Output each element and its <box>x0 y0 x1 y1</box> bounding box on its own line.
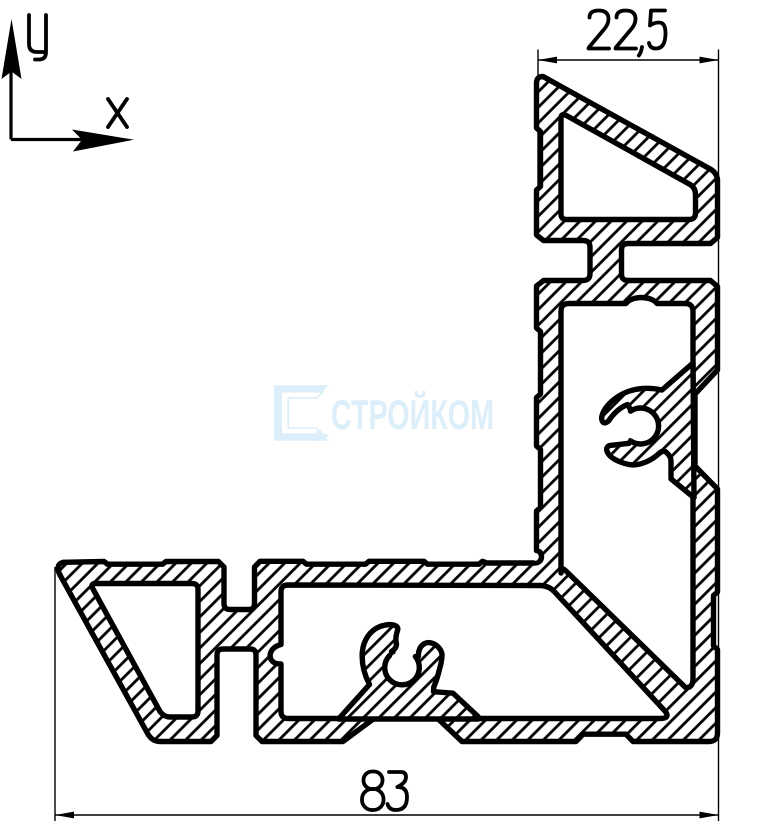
svg-text:СТРОЙКОМ: СТРОЙКОМ <box>331 390 494 438</box>
